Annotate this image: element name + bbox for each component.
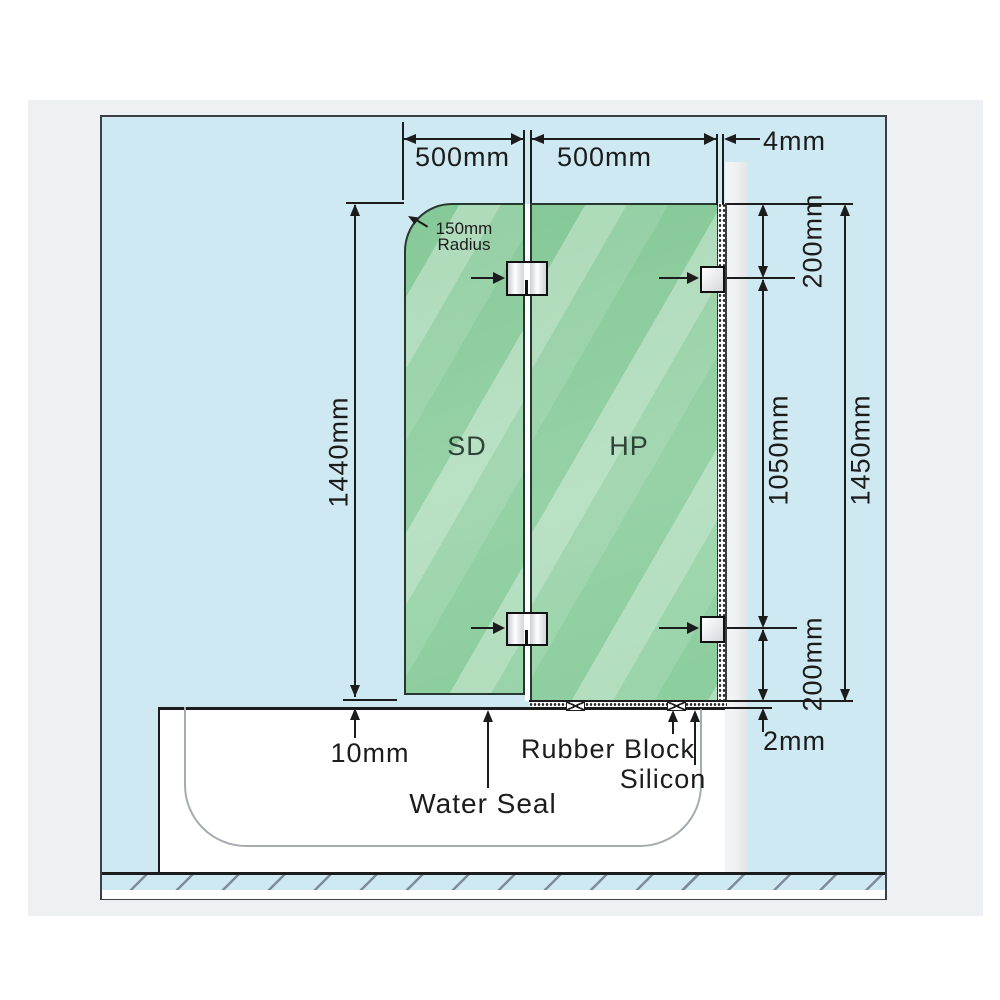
dim-overall-height-arrow-down-icon	[840, 689, 850, 701]
silicon-arrow-line	[694, 722, 696, 765]
rubber-block-left	[566, 701, 585, 711]
floor-understrip	[102, 890, 885, 899]
water-seal-arrow-icon	[483, 710, 493, 722]
hinge-top-left-leaf	[508, 263, 524, 294]
floor-hatching	[102, 875, 885, 890]
dim-hp-arrow-right-icon	[704, 133, 716, 145]
ext-line-glass-right	[716, 134, 718, 205]
hinge-bottom-pointer-line	[471, 627, 493, 629]
dim-label-glass-height: 1440mm	[324, 396, 355, 507]
dim-label-bottom-offset: 200mm	[798, 616, 829, 711]
dim-label-hinge-spacing: 1050mm	[764, 394, 795, 505]
dim-label-wall-gap: 4mm	[763, 126, 826, 157]
wall-bracket-bottom	[700, 616, 725, 643]
hinge-top-pointer-arrow-icon	[493, 272, 505, 284]
ext-line-glass-top-right	[727, 203, 853, 205]
hinge-top-right-leaf	[530, 263, 546, 294]
dim-tub-gap-arrow-icon	[758, 708, 768, 720]
rubber-block-arrow-icon	[668, 710, 678, 722]
dim-label-overall-height: 1450mm	[846, 394, 877, 505]
dim-bottom-offset-arrow-down-icon	[758, 689, 768, 701]
panel-label-hp: HP	[592, 431, 666, 462]
dim-label-floor-gap: 10mm	[315, 738, 425, 769]
ext-line-wall-face	[722, 134, 724, 205]
dim-label-sd-width: 500mm	[402, 142, 523, 173]
bracket-bottom-pointer-line	[659, 627, 687, 629]
hinge-bottom-left-leaf	[508, 614, 524, 644]
dim-wall-gap-line	[736, 138, 760, 140]
water-seal-arrow-line	[487, 722, 489, 788]
hinge-bottom-pointer-arrow-icon	[493, 622, 505, 634]
silicon-arrow-icon	[690, 710, 700, 722]
dim-hinge-spacing-arrow-up-icon	[758, 279, 768, 291]
dim-line-sd-width	[404, 138, 523, 140]
ext-line-junction-left	[523, 130, 525, 203]
bracket-top-pointer-arrow-icon	[687, 272, 699, 284]
rubber-block-label: Rubber Block	[508, 734, 708, 765]
hinge-bottom-right-leaf	[530, 614, 546, 644]
water-seal-label: Water Seal	[383, 788, 583, 820]
hinge-bottom-pivot	[525, 630, 528, 646]
bracket-bottom-pointer-arrow-icon	[687, 622, 699, 634]
dim-glass-height-arrow-bottom-icon	[350, 685, 360, 697]
dim-floor-gap-arrow-icon	[350, 708, 360, 720]
rubber-block-arrow-line	[672, 722, 674, 734]
dim-label-tub-gap: 2mm	[763, 726, 826, 757]
hinge-top-pointer-line	[471, 277, 493, 279]
dim-wall-gap-arrow-icon	[724, 134, 736, 144]
silicon-label: Silicon	[563, 764, 763, 795]
hinge-top-pivot	[525, 280, 528, 296]
dim-hinge-spacing-arrow-down-icon	[758, 616, 768, 628]
ext-line-sd-bottom	[343, 699, 397, 701]
dim-line-hp-width	[532, 138, 716, 140]
shower-screen-installation-diagram: 500mm 500mm 4mm 1440mm 10mm 200mm 1050mm…	[0, 0, 1000, 1000]
wall-bracket-top	[700, 266, 725, 293]
dim-top-offset-arrow-up-icon	[758, 204, 768, 216]
dim-overall-height-arrow-up-icon	[840, 204, 850, 216]
silicon-strip-bottom	[529, 700, 727, 709]
dim-floor-gap-tail	[354, 720, 356, 738]
panel-label-sd: SD	[430, 431, 504, 462]
dim-bottom-offset-arrow-up-icon	[758, 629, 768, 641]
radius-label-word: Radius	[432, 235, 496, 255]
ext-line-glass-bottom-right	[727, 700, 853, 702]
dim-label-hp-width: 500mm	[532, 142, 677, 173]
dim-glass-height-arrow-top-icon	[350, 204, 360, 216]
dim-top-offset-arrow-down-icon	[758, 266, 768, 278]
dim-label-top-offset: 200mm	[798, 193, 829, 288]
bracket-top-pointer-line	[659, 277, 687, 279]
